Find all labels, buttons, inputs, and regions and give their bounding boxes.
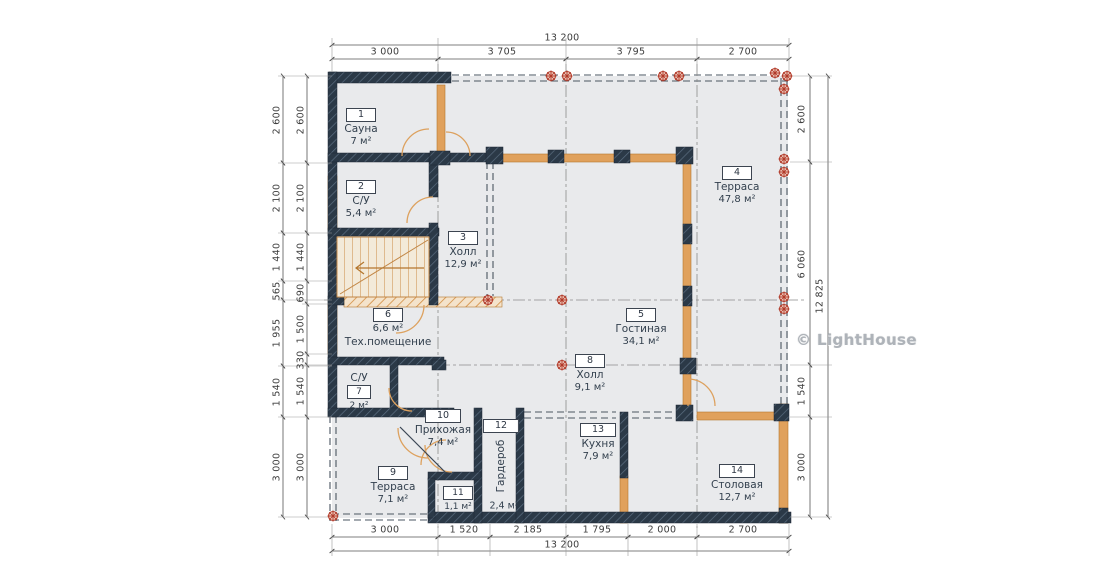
room-label-tech-6: 6 Тех.помещение 6,6 м² <box>342 308 434 348</box>
dim-bottom-seg-4: 1 795 <box>583 525 612 536</box>
dim-left-inner-2: 2 100 <box>296 184 307 213</box>
room-number-box: 4 <box>722 166 752 180</box>
dim-left-outer-4: 565 <box>272 281 283 300</box>
room-number-box: 6 <box>373 308 403 322</box>
room-area: 34,1 м² <box>623 336 660 348</box>
room-label-living-5: 5 Гостиная 34,1 м² <box>605 308 677 348</box>
dim-left-inner-7: 1 540 <box>296 377 307 406</box>
room-area: 7 м² <box>350 136 371 148</box>
floor-plan-drawing <box>0 0 1100 586</box>
room-area: 2 м² <box>350 400 369 412</box>
room-label-hall-3: 3 Холл 12,9 м² <box>436 231 490 271</box>
room-number-box: 12 <box>483 419 519 433</box>
dim-bottom-seg-2: 1 520 <box>450 525 479 536</box>
dim-right-inner-1: 2 600 <box>797 105 808 134</box>
dim-left-inner-6: 330 <box>296 350 307 369</box>
room-area: 5,4 м² <box>346 208 377 220</box>
room-label-sauna: 1 Сауна 7 м² <box>334 108 388 148</box>
dim-bottom-seg-3: 2 185 <box>514 525 543 536</box>
room-number-box: 3 <box>448 231 478 245</box>
dim-right-outer-total: 12 825 <box>815 278 826 313</box>
room-name: Терраса <box>715 181 760 193</box>
room-label-su-2: 2 С/У 5,4 м² <box>334 180 388 220</box>
room-name: Сауна <box>344 123 377 135</box>
room-name: Гостиная <box>615 323 666 335</box>
dim-right-inner-2: 6 060 <box>797 250 808 279</box>
room-name: Терраса <box>371 481 416 493</box>
room-number-box: 11 <box>443 486 472 500</box>
room-label-kitchen-13: 13 Кухня 7,9 м² <box>568 423 628 463</box>
dim-left-outer-3: 1 440 <box>272 243 283 272</box>
dim-left-outer-5: 1 955 <box>272 319 283 348</box>
dim-top-seg-3: 3 795 <box>617 47 646 58</box>
dim-bottom-seg-6: 2 700 <box>729 525 758 536</box>
room-number-box: 5 <box>626 308 656 322</box>
room-number-box: 7 <box>347 385 371 399</box>
room-label-dining-14: 14 Столовая 12,7 м² <box>704 464 770 504</box>
dim-top-seg-4: 2 700 <box>729 47 758 58</box>
dim-top-total: 13 200 <box>544 33 579 44</box>
watermark-lighthouse: © LightHouse <box>796 331 917 349</box>
dim-bottom-seg-5: 2 000 <box>648 525 677 536</box>
room-number-box: 14 <box>719 464 755 478</box>
dim-right-inner-4: 3 000 <box>797 453 808 482</box>
room-area: 6,6 м² <box>373 323 404 335</box>
dim-top-seg-2: 3 705 <box>488 47 517 58</box>
room-area: 7,4 м² <box>428 437 459 449</box>
room-name: Тех.помещение <box>345 336 432 348</box>
room-number-box: 13 <box>580 423 616 437</box>
room-number-box: 2 <box>346 180 376 194</box>
room-area: 47,8 м² <box>719 194 756 206</box>
room-area: 2,4 м² <box>489 501 518 512</box>
room-area: 7,9 м² <box>583 451 614 463</box>
room-label-terrace-9: 9 Терраса 7,1 м² <box>366 466 420 506</box>
room-name-wardrobe: Гардероб <box>495 440 507 493</box>
room-number-box: 1 <box>346 108 376 122</box>
room-label-terrace-4: 4 Терраса 47,8 м² <box>702 166 772 206</box>
room-number-box: 10 <box>425 409 461 423</box>
dim-left-outer-6: 1 540 <box>272 378 283 407</box>
dim-left-outer-1: 2 600 <box>272 106 283 135</box>
room-label-closet-11: 11 1,1 м² <box>436 486 480 513</box>
room-area: 7,1 м² <box>378 494 409 506</box>
dim-bottom-seg-1: 3 000 <box>371 525 400 536</box>
room-label-su-7: 7 С/У 2 м² <box>334 372 384 412</box>
room-area: 9,1 м² <box>575 382 606 394</box>
stairs <box>337 237 429 297</box>
room-label-hall-8: 8 Холл 9,1 м² <box>562 354 618 394</box>
room-area: 1,1 м² <box>444 501 472 513</box>
room-number-box: 8 <box>575 354 605 368</box>
floor-plan-page: 13 200 3 000 3 705 3 795 2 700 3 000 1 5… <box>0 0 1100 586</box>
dim-right-inner-3: 1 540 <box>797 377 808 406</box>
room-name: Прихожая <box>415 424 471 436</box>
dim-left-inner-3: 1 440 <box>296 243 307 272</box>
room-number-box: 9 <box>378 466 408 480</box>
room-name: Холл <box>449 246 476 258</box>
dim-left-inner-4: 690 <box>296 283 307 302</box>
room-area: 12,9 м² <box>445 259 482 271</box>
dim-left-inner-5: 1 500 <box>296 315 307 344</box>
dim-top-seg-1: 3 000 <box>371 47 400 58</box>
dim-bottom-total: 13 200 <box>544 540 579 551</box>
room-name: С/У <box>350 372 367 384</box>
dim-left-inner-1: 2 600 <box>296 106 307 135</box>
dim-left-inner-8: 3 000 <box>296 453 307 482</box>
room-area: 12,7 м² <box>719 492 756 504</box>
dim-left-outer-2: 2 100 <box>272 184 283 213</box>
room-name: Кухня <box>581 438 614 450</box>
room-name: Холл <box>576 369 603 381</box>
room-label-entry-10: 10 Прихожая 7,4 м² <box>412 409 474 449</box>
room-name: Столовая <box>711 479 763 491</box>
dim-left-outer-7: 3 000 <box>272 453 283 482</box>
room-name: С/У <box>352 195 369 207</box>
